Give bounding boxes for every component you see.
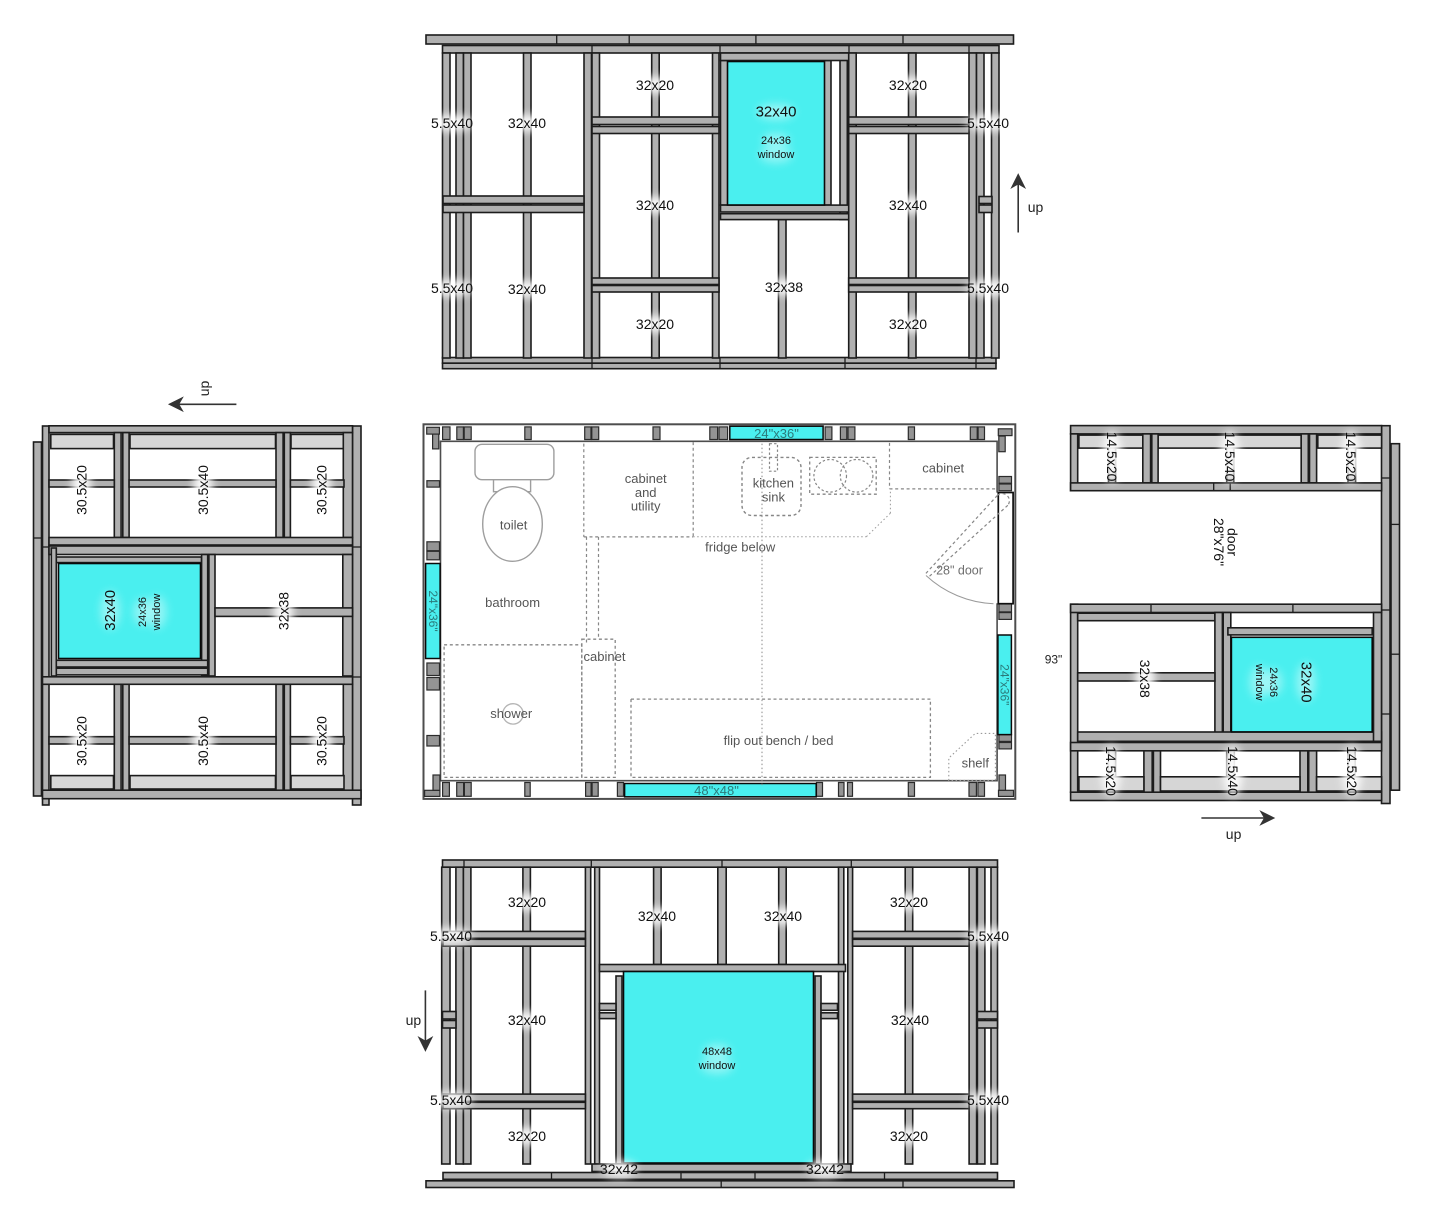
svg-text:5.5x40: 5.5x40 <box>431 115 473 131</box>
svg-text:93": 93" <box>1045 653 1063 667</box>
svg-text:32x20: 32x20 <box>508 1128 546 1144</box>
svg-text:32x40: 32x40 <box>1297 662 1314 703</box>
svg-text:14.5x20: 14.5x20 <box>1344 746 1360 796</box>
svg-text:30.5x40: 30.5x40 <box>195 716 211 766</box>
svg-text:window: window <box>757 149 795 161</box>
svg-text:5.5x40: 5.5x40 <box>431 280 473 296</box>
svg-text:48x48: 48x48 <box>702 1046 732 1058</box>
svg-text:14.5x40: 14.5x40 <box>1225 746 1241 796</box>
svg-text:30.5x20: 30.5x20 <box>314 465 330 515</box>
svg-text:24x36: 24x36 <box>1267 667 1279 697</box>
svg-text:28"x76": 28"x76" <box>1211 518 1227 566</box>
svg-text:32x40: 32x40 <box>508 1012 546 1028</box>
svg-text:window: window <box>151 594 163 632</box>
svg-text:up: up <box>1226 826 1242 842</box>
svg-text:32x40: 32x40 <box>756 104 797 121</box>
svg-text:32x20: 32x20 <box>636 77 674 93</box>
svg-text:up: up <box>196 381 212 397</box>
svg-text:32x20: 32x20 <box>889 316 927 332</box>
svg-text:up: up <box>1028 199 1044 215</box>
svg-text:5.5x40: 5.5x40 <box>967 1092 1009 1108</box>
svg-text:32x40: 32x40 <box>889 197 927 213</box>
svg-text:24"x36": 24"x36" <box>426 590 440 631</box>
svg-text:30.5x20: 30.5x20 <box>74 716 90 766</box>
svg-text:5.5x40: 5.5x40 <box>430 1092 472 1108</box>
svg-text:cabinet: cabinet <box>922 461 964 476</box>
svg-text:32x42: 32x42 <box>600 1161 638 1177</box>
svg-text:32x40: 32x40 <box>764 908 802 924</box>
svg-text:window: window <box>1253 663 1265 701</box>
svg-text:32x38: 32x38 <box>276 592 292 630</box>
svg-text:14.5x20: 14.5x20 <box>1343 432 1359 482</box>
svg-text:kitchen: kitchen <box>753 476 794 491</box>
svg-text:bathroom: bathroom <box>485 595 540 610</box>
svg-text:32x40: 32x40 <box>508 281 546 297</box>
svg-text:32x42: 32x42 <box>806 1161 844 1177</box>
svg-text:24x36: 24x36 <box>137 597 149 627</box>
svg-text:window: window <box>698 1060 736 1072</box>
svg-text:shelf: shelf <box>962 755 990 770</box>
svg-text:30.5x20: 30.5x20 <box>74 465 90 515</box>
svg-text:utility: utility <box>631 499 661 514</box>
svg-text:24"x36": 24"x36" <box>998 664 1012 705</box>
svg-text:32x40: 32x40 <box>636 197 674 213</box>
svg-text:toilet: toilet <box>500 517 528 532</box>
svg-text:32x20: 32x20 <box>889 77 927 93</box>
svg-text:5.5x40: 5.5x40 <box>967 280 1009 296</box>
svg-text:28" door: 28" door <box>936 564 983 578</box>
svg-text:32x38: 32x38 <box>1137 660 1153 698</box>
svg-text:24x36: 24x36 <box>761 135 791 147</box>
svg-text:up: up <box>406 1012 422 1028</box>
svg-text:14.5x20: 14.5x20 <box>1103 746 1119 796</box>
svg-text:32x40: 32x40 <box>508 115 546 131</box>
svg-text:32x40: 32x40 <box>102 590 119 631</box>
svg-text:shower: shower <box>490 706 533 721</box>
svg-text:sink: sink <box>762 490 786 505</box>
svg-text:14.5x20: 14.5x20 <box>1104 432 1120 482</box>
svg-text:14.5x40: 14.5x40 <box>1222 432 1238 482</box>
svg-text:32x20: 32x20 <box>890 894 928 910</box>
svg-text:32x20: 32x20 <box>890 1128 928 1144</box>
svg-text:flip out bench / bed: flip out bench / bed <box>724 733 834 748</box>
svg-text:30.5x40: 30.5x40 <box>195 465 211 515</box>
svg-text:30.5x20: 30.5x20 <box>314 716 330 766</box>
svg-text:5.5x40: 5.5x40 <box>430 928 472 944</box>
svg-text:32x38: 32x38 <box>765 279 803 295</box>
svg-text:5.5x40: 5.5x40 <box>967 928 1009 944</box>
svg-text:5.5x40: 5.5x40 <box>967 115 1009 131</box>
svg-text:32x40: 32x40 <box>638 908 676 924</box>
svg-text:32x20: 32x20 <box>508 894 546 910</box>
svg-text:48"x48": 48"x48" <box>694 783 739 798</box>
svg-text:24"x36": 24"x36" <box>754 426 799 441</box>
svg-text:32x40: 32x40 <box>891 1012 929 1028</box>
svg-text:cabinet: cabinet <box>584 649 626 664</box>
svg-text:fridge below: fridge below <box>705 539 776 554</box>
svg-text:32x20: 32x20 <box>636 316 674 332</box>
